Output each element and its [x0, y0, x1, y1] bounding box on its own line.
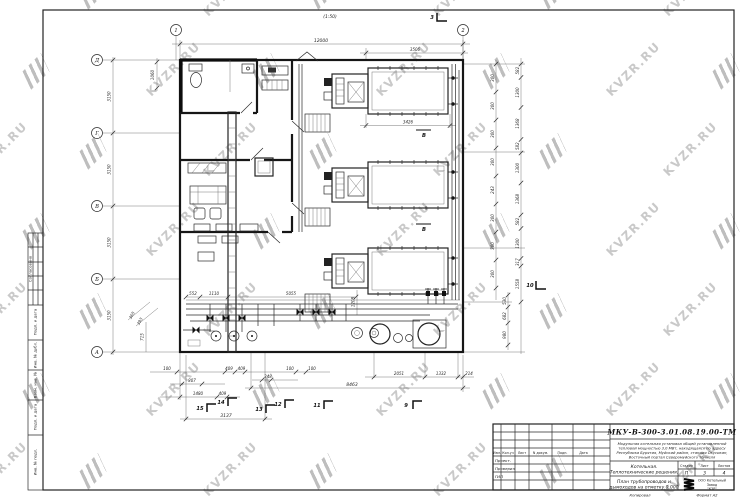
- tank: [370, 324, 390, 344]
- col-data: Дата: [579, 451, 588, 455]
- valve-icon: [434, 291, 438, 296]
- drawing-svg: Согласовано Подп. и дата Инв. № дубл. Вз…: [0, 0, 750, 500]
- dim-right-inner: 300: [490, 74, 495, 82]
- equipment-tag: [188, 340, 200, 346]
- dim-inner: 1208: [351, 296, 356, 307]
- grid-row-label: В: [94, 204, 99, 210]
- boiler-unit: [305, 66, 458, 132]
- row-proekt: Проект.: [495, 458, 511, 463]
- section-label: В: [422, 227, 426, 233]
- grid-col-label: 1: [174, 28, 177, 34]
- title-block: МКУ-В-300-3.01.08.19.00-ТМ Модульная кот…: [493, 424, 736, 491]
- scale-label: (1:50): [323, 14, 337, 20]
- description-line: тепловой мощностью 3,0 МВт, находящаяся …: [618, 447, 726, 451]
- dim-left-bay: 3150: [107, 91, 112, 102]
- dim-right: 582: [515, 142, 520, 150]
- dim-right-inner: 300: [490, 130, 495, 138]
- dim-bottom: 2051: [394, 371, 404, 376]
- grid-col-label: 2: [460, 28, 464, 34]
- dim-bottom: 1332: [436, 371, 447, 376]
- dim-right: 317: [515, 258, 520, 266]
- sheet-title-line: План трубопроводов и: [617, 479, 671, 485]
- frame-label: Взам. инв. №: [33, 372, 38, 398]
- dim-bottom: 409: [238, 366, 246, 371]
- object-name-line: Теплотехнические решения.: [610, 470, 678, 476]
- object-name-line: Котельная.: [631, 464, 658, 470]
- dim-bottom: 100: [163, 366, 171, 371]
- dim-bottom: 348: [264, 374, 272, 379]
- row-gip: ГИП: [495, 474, 503, 479]
- footer-copied-label: Копировал: [629, 494, 651, 498]
- dim-right: 582: [515, 66, 520, 74]
- dim-right: 1558: [515, 278, 520, 289]
- pump: [394, 334, 403, 343]
- sheets-label: Листов: [718, 464, 730, 468]
- shelf: [262, 80, 288, 90]
- section-label: 14: [217, 400, 225, 406]
- sink: [242, 64, 254, 73]
- doc-number: МКУ-В-300-3.01.08.19.00-ТМ: [607, 428, 737, 437]
- section-label: 11: [313, 403, 320, 409]
- dim-right: 1368: [515, 193, 520, 204]
- dim-right: 1300: [515, 87, 520, 98]
- dim-bottom: 807: [188, 378, 196, 383]
- dim-inner: 715: [140, 333, 145, 341]
- pipe-mains: [299, 64, 459, 300]
- dim-right-bottom: 530: [502, 297, 507, 305]
- electrical-panel: [194, 224, 210, 231]
- dim-left-top: 1060: [150, 69, 155, 80]
- dim-right-inner: 300: [490, 242, 495, 250]
- dim-inner: 1110: [209, 291, 220, 296]
- description-line: Республика Бурятия, Муйский район, станц…: [616, 451, 727, 455]
- col-list: Лист: [518, 451, 526, 455]
- electrical-panel: [216, 224, 232, 231]
- footer-format-label: Формат А2: [696, 494, 718, 498]
- toilet: [191, 73, 202, 88]
- dim-bottom: 100: [308, 366, 316, 371]
- dim-right-inner: 300: [490, 102, 495, 110]
- chair: [210, 208, 221, 219]
- pump: [352, 328, 363, 339]
- section-label: 13: [255, 407, 263, 413]
- row-proveril: Проверил: [495, 466, 515, 471]
- dim-bottom: 1480: [193, 391, 204, 396]
- col-podp: Подп.: [558, 451, 568, 455]
- grid-row-label: Г: [94, 131, 99, 137]
- grid-row-label: Б: [94, 277, 99, 283]
- frame-label: Подп. и дата: [33, 403, 38, 430]
- pump: [406, 335, 413, 342]
- dim-bottom: 100: [286, 366, 294, 371]
- dim-left-bay: 3150: [107, 310, 112, 321]
- frame-label: Согласовано: [28, 255, 33, 282]
- electrical-panel: [198, 252, 214, 261]
- dim-right-inner: 243: [490, 186, 495, 194]
- dim-right-bottom: 980: [502, 331, 507, 339]
- electrical-panel: [198, 236, 216, 243]
- dim-left-bay: 3150: [107, 237, 112, 248]
- boiler-unit: [305, 160, 458, 226]
- dim-bottom: 409: [225, 366, 233, 371]
- sheet-title-line: дымоходов на отметку 0,000: [608, 485, 678, 491]
- monitor: [268, 68, 276, 73]
- frame-label: Инв. № подл.: [33, 449, 38, 476]
- dim-inner: 552: [189, 291, 197, 296]
- col-koluch: Кол.уч: [502, 451, 513, 455]
- valve-icon: [442, 291, 446, 296]
- sheet-value: 3: [703, 471, 706, 477]
- dim-right-inner: 300: [490, 270, 495, 278]
- dim-right: 1368: [515, 118, 520, 129]
- description-line: Восточный портал Северомуйского тоннеля: [629, 456, 716, 460]
- valve-icon: [426, 291, 430, 296]
- stage-label: Стадия: [680, 464, 693, 468]
- section-label: 15: [196, 406, 204, 412]
- dim-right-inner: 300: [490, 158, 495, 166]
- cabinet: [188, 163, 226, 173]
- cistern: [189, 64, 202, 71]
- sheets-value: 4: [723, 471, 726, 477]
- dim-right-bottom: 682: [502, 312, 507, 320]
- dim-left-bay: 3150: [107, 164, 112, 175]
- tank: [418, 323, 440, 345]
- dim-boiler-width: 3426: [403, 120, 414, 125]
- section-label: 10: [526, 283, 534, 289]
- dim-bottom: 214: [465, 371, 473, 376]
- dim-right: 582: [515, 217, 520, 225]
- chair: [194, 208, 205, 219]
- dim-bottom: 8463: [346, 382, 358, 388]
- dim-inner: 365: [128, 310, 136, 320]
- dim-inner: 393: [136, 316, 144, 326]
- building-walls: [180, 52, 463, 352]
- dim-bottom: 409: [219, 391, 227, 396]
- stamp-icon: [684, 479, 694, 490]
- table: [190, 186, 226, 204]
- dim-right: 1300: [515, 238, 520, 249]
- description-line: Модульная котельная установка общей уста…: [618, 442, 727, 446]
- dim-right-inner: 300: [490, 214, 495, 222]
- drawing-sheet: KVZR.RUKVZR.RUKVZR.RUKVZR.RUKVZR.RUKVZR.…: [0, 0, 750, 500]
- frame-label: Подп. и дата: [33, 308, 38, 335]
- dim-right: 1300: [515, 162, 520, 173]
- section-label: 3: [430, 15, 434, 21]
- frame-label: Инв. № дубл.: [33, 342, 38, 369]
- boiler-unit: [305, 246, 458, 312]
- col-izm: Изм.: [493, 451, 501, 455]
- dim-top-overall: 12000: [314, 38, 328, 44]
- section-label: 12: [274, 402, 282, 408]
- dim-inner: 5055: [286, 291, 297, 296]
- sheet-label: Лист: [700, 464, 708, 468]
- grid-row-label: Д: [94, 58, 100, 64]
- dim-top-sub: 3506: [410, 47, 421, 52]
- electrical-panel: [240, 224, 258, 231]
- stage-value: П: [685, 471, 689, 477]
- grid-axes: 1 2 Д Г В Б А: [92, 25, 469, 358]
- section-label: 9: [404, 403, 408, 409]
- company-line: "КЗР": [707, 487, 717, 491]
- floor-plan: (1:50) 1 2 Д Г В Б А 12000: [92, 13, 547, 421]
- grid-row-label: А: [94, 350, 99, 356]
- dim-bottom: 3137: [220, 413, 232, 419]
- section-label: В: [422, 133, 426, 139]
- col-docnum: N докум.: [533, 451, 548, 455]
